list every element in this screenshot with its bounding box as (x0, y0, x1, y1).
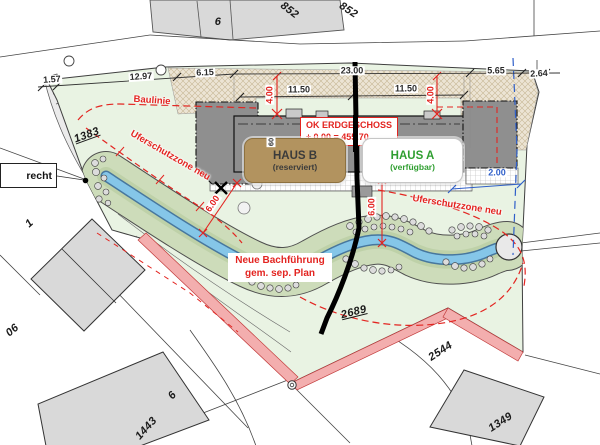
dim-depth-right: 4.00 (426, 85, 435, 105)
easement-label: recht (26, 170, 52, 182)
parcel-label-6-top: 6 (215, 17, 222, 29)
easement-label-box: recht (0, 163, 57, 188)
stream-note-line1: Neue Bachführung (228, 255, 332, 268)
floor-level-line1: OK ERDGESCHOSS (306, 120, 392, 132)
haus-b-name: HAUS B (273, 150, 317, 162)
dim-east-offset: 2.00 (487, 168, 507, 177)
pond (496, 234, 522, 260)
wall-dimension-label: 60 (267, 137, 276, 147)
haus-a-status: (verfügbar) (390, 162, 435, 172)
dim-depth-left: 4.00 (265, 85, 274, 105)
dim-2-64: 2.64 (529, 69, 549, 79)
stream-note: Neue Bachführung gem. sep. Plan (228, 253, 332, 282)
dim-6-15: 6.15 (195, 68, 215, 78)
site-plan-canvas (0, 0, 600, 445)
dim-5-65: 5.65 (486, 66, 506, 75)
haus-a-name: HAUS A (391, 150, 435, 162)
dim-haus-a-width: 11.50 (394, 84, 418, 93)
site-plan: 6 852 852 1383 1 06 2689 2544 1349 1443 … (0, 0, 600, 445)
haus-a-badge[interactable]: HAUS A (verfügbar) (362, 138, 463, 183)
top-parcel-buildings (150, 0, 344, 40)
dim-buffer-right: 6.00 (367, 197, 376, 217)
stream-note-line2: gem. sep. Plan (228, 268, 332, 281)
haus-b-status: (reserviert) (273, 162, 317, 172)
dim-haus-b-width: 11.50 (287, 85, 311, 94)
dim-12-97: 12.97 (128, 71, 153, 82)
dim-1-57: 1.57 (42, 75, 62, 86)
section-line-overlay (353, 115, 358, 152)
dim-23-00: 23.00 (340, 66, 365, 75)
path-node-marker (288, 381, 296, 389)
haus-b-badge[interactable]: HAUS B (reserviert) (244, 138, 346, 183)
